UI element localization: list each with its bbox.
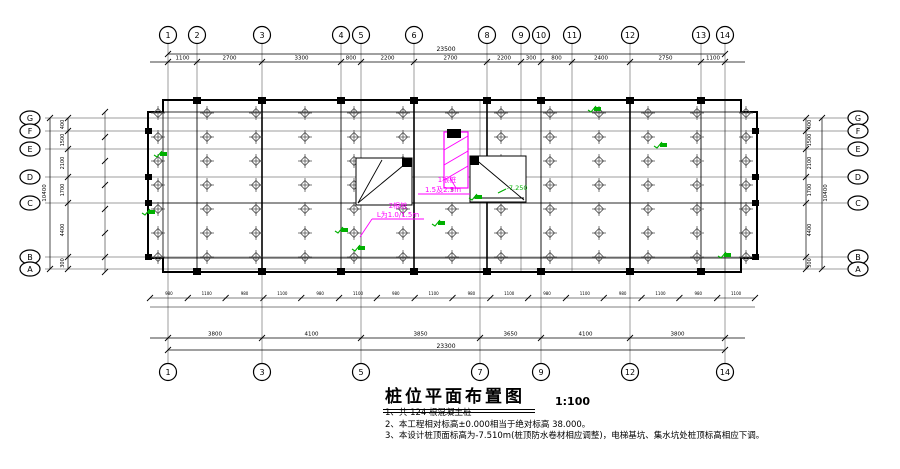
pile-symbol bbox=[592, 226, 606, 240]
pile-symbol bbox=[690, 178, 704, 192]
column-blob-bottom bbox=[483, 268, 491, 275]
pile-symbol bbox=[298, 202, 312, 216]
inner-bottom-dim-14: 1100 bbox=[655, 291, 666, 296]
top-dim-9: 800 bbox=[551, 56, 562, 62]
pile-symbol bbox=[298, 226, 312, 240]
pile-annotation-2-line1: 2根桩 bbox=[389, 201, 407, 210]
axis-left-D-label: D bbox=[27, 173, 33, 182]
pile-symbol bbox=[396, 250, 410, 264]
pile-symbol bbox=[592, 154, 606, 168]
axis-top-13-label: 13 bbox=[696, 31, 706, 40]
top-total-dim: 23500 bbox=[436, 46, 455, 53]
axis-right-D-label: D bbox=[855, 173, 861, 182]
pile-symbol bbox=[690, 154, 704, 168]
column-blob-top bbox=[537, 97, 545, 104]
axis-bottom-3-label: 3 bbox=[259, 368, 264, 377]
right-dim-2: 1500 bbox=[807, 134, 813, 147]
top-dim-5: 2200 bbox=[381, 56, 395, 62]
inner-bottom-dim-10: 1100 bbox=[504, 291, 515, 296]
pile-symbol bbox=[494, 202, 508, 216]
pile-annotation-2-leader bbox=[360, 219, 372, 237]
pile-symbol bbox=[249, 250, 263, 264]
pile-symbol bbox=[592, 202, 606, 216]
right-dim-1: 400 bbox=[807, 120, 813, 130]
column-blob-left bbox=[145, 254, 152, 260]
right-dim-6: 300 bbox=[807, 258, 813, 268]
column-blob-right bbox=[752, 174, 759, 180]
pile-symbol bbox=[200, 130, 214, 144]
pile-symbol bbox=[298, 130, 312, 144]
bottom-dim-1: 3800 bbox=[208, 332, 222, 338]
inner-bottom-dim-3: 980 bbox=[241, 291, 249, 296]
column-blob-left bbox=[145, 174, 152, 180]
bottom-dim-5: 4100 bbox=[579, 332, 593, 338]
inner-bottom-dim-16: 1100 bbox=[731, 291, 742, 296]
pile-symbol bbox=[298, 250, 312, 264]
inner-bottom-dim-7: 980 bbox=[392, 291, 400, 296]
pile-symbol bbox=[641, 178, 655, 192]
pile-symbol bbox=[543, 154, 557, 168]
drawing-canvas: 2350011002700330080022002700220030080024… bbox=[0, 0, 900, 469]
bottom-dim-2: 4100 bbox=[305, 332, 319, 338]
stair-right-landing bbox=[470, 156, 479, 165]
pile-symbol bbox=[396, 226, 410, 240]
column-blob-bottom bbox=[626, 268, 634, 275]
axis-left-B-label: B bbox=[27, 253, 33, 262]
left-dim-5: 4400 bbox=[60, 224, 66, 237]
inner-bottom-dim-5: 980 bbox=[316, 291, 324, 296]
pile-symbol bbox=[543, 178, 557, 192]
bottom-dim-4: 3650 bbox=[504, 332, 518, 338]
axis-right-F-label: F bbox=[856, 127, 861, 136]
pile-symbol bbox=[200, 154, 214, 168]
column-blob-right bbox=[752, 128, 759, 134]
left-dim-6: 300 bbox=[60, 258, 66, 268]
column-blob-top bbox=[193, 97, 201, 104]
right-dim-4: 1700 bbox=[807, 184, 813, 197]
axis-left-A-label: A bbox=[27, 265, 33, 274]
pile-symbol bbox=[249, 178, 263, 192]
note-line-3: 3、本设计桩顶面标高为-7.510m(桩顶防水卷材相应调整)，电梯基坑、集水坑处… bbox=[385, 431, 764, 443]
pile-symbol bbox=[445, 250, 459, 264]
elevation-label: -7.250 bbox=[507, 184, 528, 192]
bottom-total-dim: 23300 bbox=[436, 343, 455, 350]
top-dim-8: 300 bbox=[526, 56, 537, 62]
pile-symbol bbox=[543, 130, 557, 144]
axis-right-E-label: E bbox=[855, 145, 860, 154]
column-blob-right bbox=[752, 254, 759, 260]
left-dim-1: 400 bbox=[60, 120, 66, 130]
top-dim-3: 3300 bbox=[295, 56, 309, 62]
notes-list: 1、共 124 根混凝土桩2、本工程相对标高±0.000相当于绝对标高 38.0… bbox=[385, 408, 764, 443]
pile-symbol bbox=[200, 226, 214, 240]
left-dim-4: 1700 bbox=[60, 184, 66, 197]
pile-symbol bbox=[592, 178, 606, 192]
pile-symbol bbox=[396, 130, 410, 144]
shaft-top-block bbox=[447, 129, 461, 138]
column-blob-left bbox=[145, 128, 152, 134]
inner-bottom-dim-2: 1100 bbox=[202, 291, 213, 296]
axis-bottom-1-label: 1 bbox=[165, 368, 170, 377]
pile-symbol bbox=[200, 250, 214, 264]
axis-top-14-label: 14 bbox=[720, 31, 730, 40]
pile-symbol bbox=[298, 154, 312, 168]
left-total-dim: 10400 bbox=[42, 184, 48, 202]
column-blob-left bbox=[145, 200, 152, 206]
pile-symbol bbox=[347, 226, 361, 240]
top-dim-6: 2700 bbox=[444, 56, 458, 62]
pile-symbol bbox=[641, 202, 655, 216]
bottom-dim-6: 3800 bbox=[671, 332, 685, 338]
axis-left-E-label: E bbox=[27, 145, 32, 154]
pile-annotation-1-line1: 1根桩 bbox=[438, 175, 456, 184]
axis-top-3-label: 3 bbox=[259, 31, 264, 40]
axis-top-5-label: 5 bbox=[358, 31, 363, 40]
axis-left-F-label: F bbox=[28, 127, 33, 136]
column-blob-right bbox=[752, 200, 759, 206]
axis-bottom-12-label: 12 bbox=[625, 368, 635, 377]
axis-top-12-label: 12 bbox=[625, 31, 635, 40]
column-blob-top bbox=[697, 97, 705, 104]
column-blob-bottom bbox=[258, 268, 266, 275]
top-dim-7: 2200 bbox=[497, 56, 511, 62]
pile-symbol bbox=[249, 154, 263, 168]
top-dim-1: 1100 bbox=[176, 56, 190, 62]
pile-symbol bbox=[592, 130, 606, 144]
column-blob-top bbox=[258, 97, 266, 104]
right-total-dim: 10400 bbox=[823, 184, 829, 202]
pile-annotation-2-line2: L为1.0/1.5m bbox=[377, 210, 420, 219]
column-blob-top bbox=[626, 97, 634, 104]
pile-symbol bbox=[445, 202, 459, 216]
right-dim-3: 2100 bbox=[807, 157, 813, 170]
inner-bottom-dim-1: 980 bbox=[165, 291, 173, 296]
column-blob-top bbox=[483, 97, 491, 104]
axis-top-9-label: 9 bbox=[518, 31, 523, 40]
column-blob-bottom bbox=[410, 268, 418, 275]
axis-right-B-label: B bbox=[855, 253, 861, 262]
column-blob-bottom bbox=[193, 268, 201, 275]
axis-left-G-label: G bbox=[27, 114, 33, 123]
axis-top-4-label: 4 bbox=[338, 31, 343, 40]
pile-symbol bbox=[592, 250, 606, 264]
column-blob-bottom bbox=[537, 268, 545, 275]
pile-symbol bbox=[494, 130, 508, 144]
left-dim-2: 1500 bbox=[60, 134, 66, 147]
pile-symbol bbox=[494, 250, 508, 264]
top-dim-10: 2400 bbox=[594, 56, 608, 62]
pile-symbol bbox=[641, 154, 655, 168]
stair-left-landing bbox=[402, 158, 412, 167]
pile-symbol bbox=[690, 226, 704, 240]
pile-symbol bbox=[690, 130, 704, 144]
axis-top-2-label: 2 bbox=[194, 31, 199, 40]
axis-right-C-label: C bbox=[855, 199, 861, 208]
pile-symbol bbox=[200, 178, 214, 192]
pile-symbol bbox=[543, 250, 557, 264]
pile-symbol bbox=[298, 178, 312, 192]
inner-bottom-dim-15: 980 bbox=[694, 291, 702, 296]
inner-bottom-dim-11: 980 bbox=[543, 291, 551, 296]
inner-bottom-dim-8: 1100 bbox=[429, 291, 440, 296]
axis-top-11-label: 11 bbox=[567, 31, 577, 40]
column-blob-bottom bbox=[697, 268, 705, 275]
axis-bottom-9-label: 9 bbox=[538, 368, 543, 377]
pile-symbol bbox=[641, 130, 655, 144]
note-line-2: 2、本工程相对标高±0.000相当于绝对标高 38.000。 bbox=[385, 420, 764, 432]
top-dim-2: 2700 bbox=[223, 56, 237, 62]
inner-bottom-dim-4: 1100 bbox=[277, 291, 288, 296]
pile-symbol bbox=[494, 226, 508, 240]
inner-bottom-dim-12: 1100 bbox=[580, 291, 591, 296]
pile-symbol bbox=[641, 226, 655, 240]
pile-symbol bbox=[249, 226, 263, 240]
axis-bottom-14-label: 14 bbox=[720, 368, 730, 377]
axis-bottom-7-label: 7 bbox=[477, 368, 482, 377]
pile-symbol bbox=[690, 250, 704, 264]
pile-symbol bbox=[543, 226, 557, 240]
pile-symbol bbox=[445, 226, 459, 240]
column-blob-bottom bbox=[337, 268, 345, 275]
pile-symbol bbox=[249, 202, 263, 216]
inner-bottom-dim-6: 1100 bbox=[353, 291, 364, 296]
axis-bottom-5-label: 5 bbox=[358, 368, 363, 377]
left-dim-3: 2100 bbox=[60, 157, 66, 170]
pile-symbol bbox=[347, 130, 361, 144]
axis-left-C-label: C bbox=[27, 199, 33, 208]
pile-symbol bbox=[347, 250, 361, 264]
inner-bottom-dim-9: 980 bbox=[468, 291, 476, 296]
column-blob-top bbox=[337, 97, 345, 104]
axis-right-A-label: A bbox=[855, 265, 861, 274]
axis-top-10-label: 10 bbox=[536, 31, 546, 40]
pile-symbol bbox=[249, 130, 263, 144]
column-blob-top bbox=[410, 97, 418, 104]
note-line-1: 1、共 124 根混凝土桩 bbox=[385, 408, 764, 420]
pile-symbol bbox=[200, 202, 214, 216]
pile-symbol bbox=[543, 202, 557, 216]
top-dim-11: 2750 bbox=[659, 56, 673, 62]
axis-right-G-label: G bbox=[855, 114, 861, 123]
bottom-dim-3: 3850 bbox=[414, 332, 428, 338]
axis-top-6-label: 6 bbox=[411, 31, 416, 40]
right-dim-5: 4400 bbox=[807, 224, 813, 237]
axis-top-1-label: 1 bbox=[165, 31, 170, 40]
axis-top-8-label: 8 bbox=[484, 31, 489, 40]
top-dim-4: 800 bbox=[346, 56, 357, 62]
pile-symbol bbox=[690, 202, 704, 216]
pile-symbol bbox=[641, 250, 655, 264]
top-dim-12: 1100 bbox=[706, 56, 720, 62]
inner-bottom-dim-13: 980 bbox=[619, 291, 627, 296]
